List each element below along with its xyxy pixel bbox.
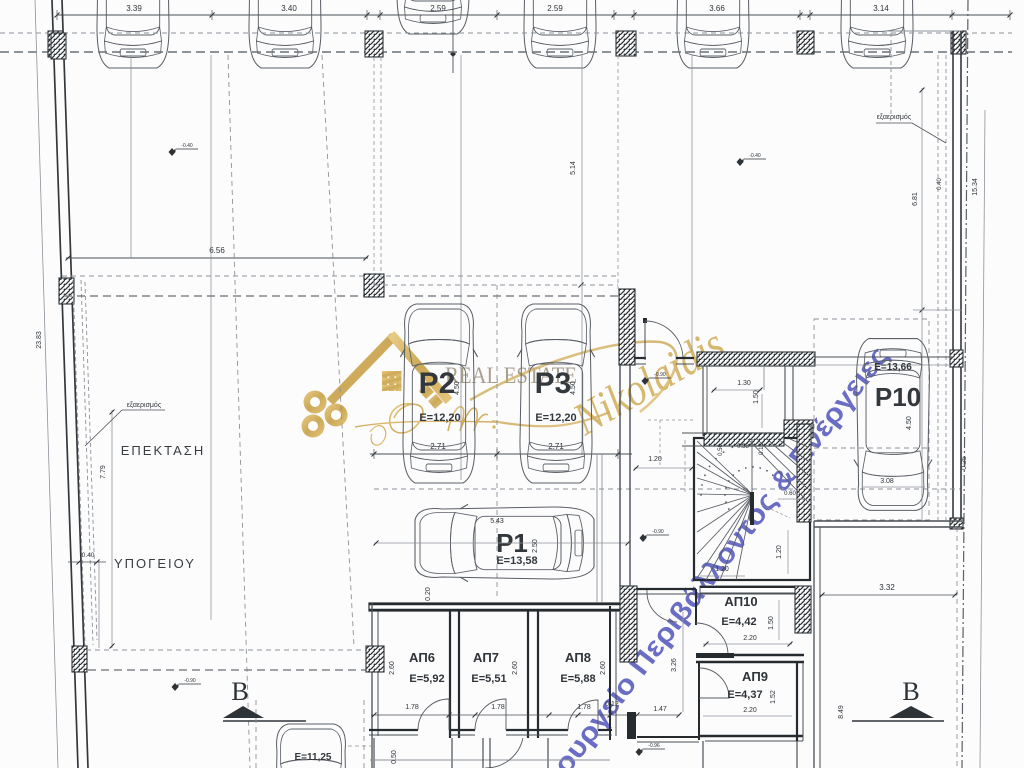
svg-text:4.50: 4.50: [570, 381, 577, 395]
svg-text:0.20: 0.20: [425, 587, 432, 601]
svg-text:E=13,66: E=13,66: [874, 362, 912, 373]
svg-text:E=5,88: E=5,88: [560, 673, 595, 685]
svg-text:6.81: 6.81: [912, 192, 919, 206]
svg-text:0.40: 0.40: [937, 178, 943, 190]
svg-text:-0.90: -0.90: [654, 372, 666, 378]
svg-text:ΑΠ6: ΑΠ6: [409, 650, 435, 665]
svg-text:ΑΠ9: ΑΠ9: [742, 669, 768, 684]
svg-text:0.50: 0.50: [391, 750, 398, 764]
svg-text:ΑΠ7: ΑΠ7: [473, 650, 499, 665]
svg-text:1.50: 1.50: [753, 390, 760, 404]
svg-text:7.79: 7.79: [100, 465, 107, 479]
svg-text:2.60: 2.60: [512, 661, 519, 675]
svg-text:P2: P2: [419, 367, 456, 400]
svg-text:1.20: 1.20: [715, 566, 729, 573]
svg-text:E=4,42: E=4,42: [721, 616, 756, 628]
svg-text:0.60: 0.60: [784, 491, 796, 497]
svg-text:5.43: 5.43: [490, 518, 504, 525]
svg-text:1.50: 1.50: [768, 616, 775, 630]
svg-text:3.08: 3.08: [880, 478, 894, 485]
svg-text:εξαερισμός: εξαερισμός: [877, 113, 912, 121]
svg-text:1.78: 1.78: [405, 704, 419, 711]
svg-text:E=12,20: E=12,20: [419, 412, 460, 424]
svg-text:0.50: 0.50: [718, 444, 724, 456]
svg-text:15.34: 15.34: [972, 178, 979, 196]
svg-text:ΕΠΕΚΤΑΣΗ: ΕΠΕΚΤΑΣΗ: [121, 443, 205, 458]
svg-text:23.83: 23.83: [36, 331, 43, 349]
svg-text:P3: P3: [535, 367, 572, 400]
svg-text:P10: P10: [875, 382, 921, 412]
svg-text:B: B: [231, 677, 248, 706]
svg-text:1.30: 1.30: [737, 380, 751, 387]
svg-text:E=12,20: E=12,20: [535, 412, 576, 424]
svg-text:εξαερισμός: εξαερισμός: [127, 401, 162, 409]
svg-text:-0.96: -0.96: [648, 743, 660, 749]
svg-text:-0.40: -0.40: [181, 143, 193, 149]
svg-text:ΥΠΟΓΕΙΟΥ: ΥΠΟΓΕΙΟΥ: [114, 556, 196, 571]
svg-text:3.26: 3.26: [671, 658, 678, 672]
svg-text:-0.90: -0.90: [652, 529, 664, 535]
svg-text:3.14: 3.14: [873, 4, 889, 13]
svg-text:E=5,92: E=5,92: [409, 673, 444, 685]
svg-text:E=4,37: E=4,37: [727, 689, 762, 701]
svg-text:0.15: 0.15: [759, 443, 765, 455]
svg-text:1.78: 1.78: [577, 704, 591, 711]
svg-text:0.38: 0.38: [737, 444, 749, 450]
svg-text:ΑΠ10: ΑΠ10: [724, 594, 757, 609]
svg-text:E=11,25: E=11,25: [295, 752, 332, 763]
svg-text:E=5,51: E=5,51: [471, 673, 506, 685]
svg-text:2.20: 2.20: [743, 707, 757, 714]
svg-text:2.20: 2.20: [743, 635, 757, 642]
svg-text:5.14: 5.14: [570, 161, 577, 175]
svg-text:2.50: 2.50: [532, 539, 539, 553]
svg-text:ΑΠ8: ΑΠ8: [565, 650, 591, 665]
svg-text:1.78: 1.78: [491, 704, 505, 711]
svg-text:6.56: 6.56: [209, 246, 225, 255]
svg-text:E=13,58: E=13,58: [496, 555, 537, 567]
svg-text:2.60: 2.60: [389, 661, 396, 675]
svg-text:-0.90: -0.90: [184, 678, 196, 684]
svg-text:8.49: 8.49: [838, 705, 845, 719]
svg-text:3.66: 3.66: [709, 4, 725, 13]
svg-text:1.52: 1.52: [770, 690, 777, 704]
svg-text:1.47: 1.47: [653, 706, 667, 713]
svg-text:1.20: 1.20: [776, 545, 783, 559]
svg-text:2.60: 2.60: [600, 661, 607, 675]
svg-text:0.25: 0.25: [961, 456, 968, 470]
svg-text:4.50: 4.50: [906, 416, 913, 430]
svg-text:-0.40: -0.40: [749, 153, 761, 159]
svg-text:4.50: 4.50: [454, 381, 461, 395]
svg-text:B: B: [902, 677, 919, 706]
svg-text:3.40: 3.40: [281, 4, 297, 13]
svg-text:2.59: 2.59: [547, 4, 563, 13]
svg-text:3.32: 3.32: [879, 583, 895, 592]
svg-text:0.12: 0.12: [605, 701, 619, 708]
svg-text:0.40: 0.40: [82, 552, 95, 559]
svg-text:3.39: 3.39: [126, 4, 142, 13]
